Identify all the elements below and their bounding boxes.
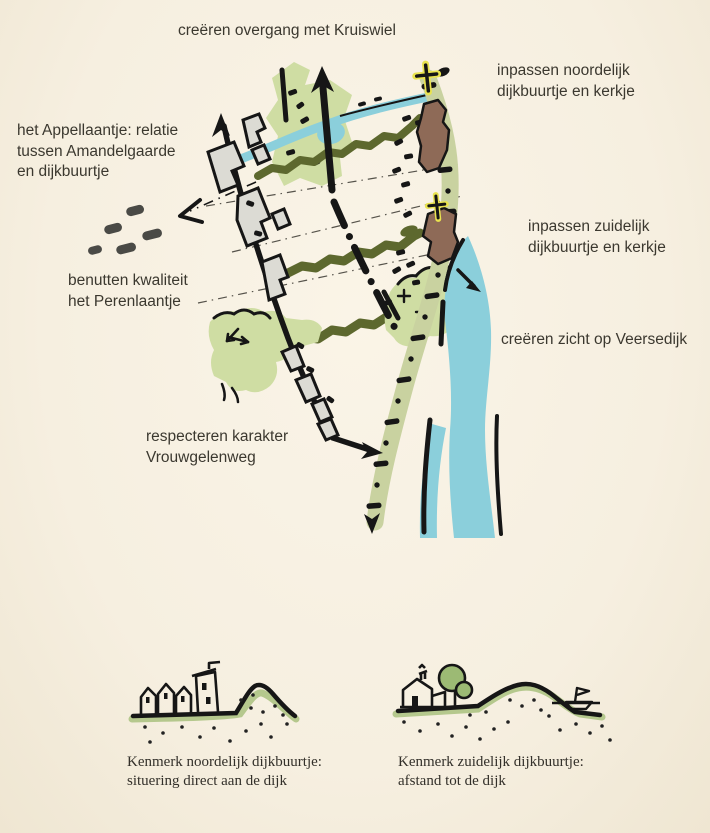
caption-noordelijk-kenmerk: Kenmerk noordelijk dijkbuurtje: situerin… xyxy=(127,753,322,791)
road-arrow-up xyxy=(212,113,230,137)
amandelgaarde-dashes xyxy=(87,204,163,256)
caption-zuidelijk-kenmerk: Kenmerk zuidelijk dijkbuurtje: afstand t… xyxy=(398,753,584,791)
sketch-map-page: creëren overgang met Kruiswiel inpassen … xyxy=(0,0,710,833)
south-village-sketch xyxy=(396,665,612,742)
label-zuidelijk-dijkbuurtje: inpassen zuidelijk dijkbuurtje en kerkje xyxy=(528,217,666,258)
farmhouse-sketch xyxy=(400,665,446,707)
label-vrouwgelenweg: respecteren karakter Vrouwgelenweg xyxy=(146,427,288,468)
label-kruiswiel: creëren overgang met Kruiswiel xyxy=(178,21,396,42)
north-village-sketch xyxy=(132,662,296,744)
label-appellaantje: het Appellaantje: relatie tussen Amandel… xyxy=(17,121,178,183)
label-noordelijk-dijkbuurtje: inpassen noordelijk dijkbuurtje en kerkj… xyxy=(497,61,635,102)
label-perenlaantje: benutten kwaliteit het Perenlaantje xyxy=(68,271,188,312)
label-veersedijk: creëren zicht op Veersedijk xyxy=(501,330,687,351)
